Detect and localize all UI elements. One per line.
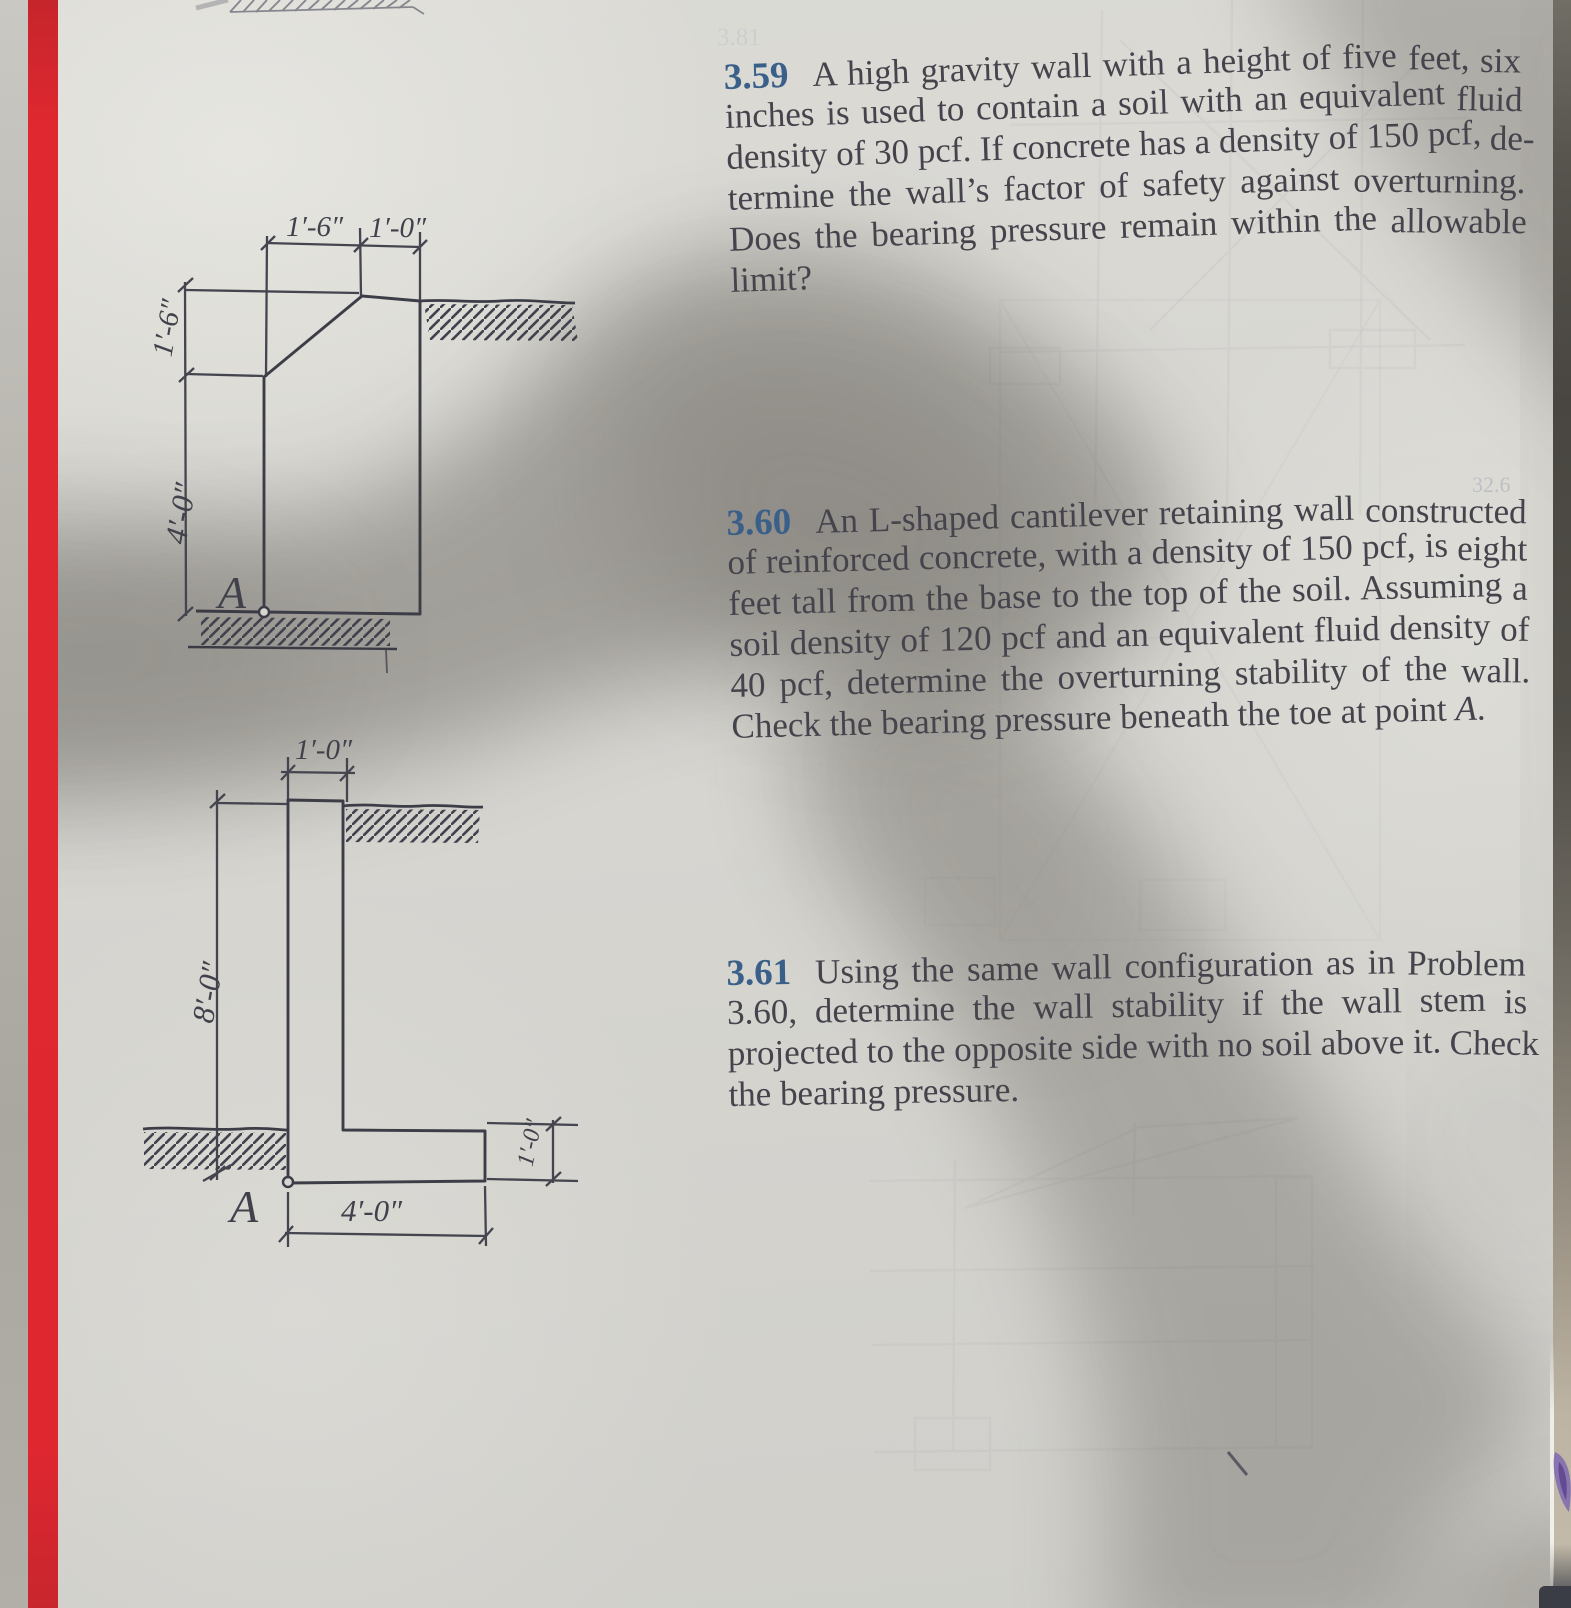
svg-text:A: A: [227, 1181, 259, 1232]
svg-text:1′-0″: 1′-0″: [369, 212, 427, 244]
svg-text:1′-6″: 1′-6″: [286, 211, 344, 243]
svg-text:1′-6″: 1′-6″: [147, 296, 189, 359]
svg-text:8′-0″: 8′-0″: [185, 958, 230, 1025]
svg-text:1′-0″: 1′-0″: [295, 734, 353, 766]
svg-text:4′-0″: 4′-0″: [158, 479, 203, 546]
svg-text:4′-0″: 4′-0″: [341, 1193, 403, 1228]
svg-text:A: A: [215, 567, 247, 618]
